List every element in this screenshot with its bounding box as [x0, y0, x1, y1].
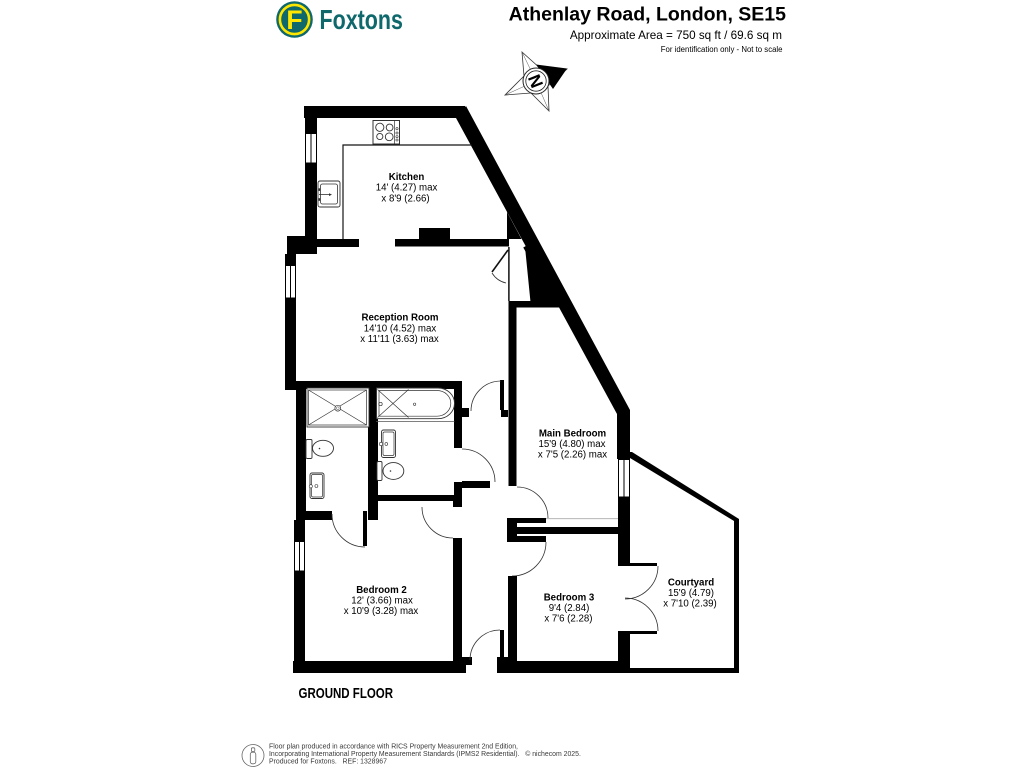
svg-text:12' (3.66) max: 12' (3.66) max [351, 596, 413, 607]
svg-text:Approximate Area = 750 sq ft /: Approximate Area = 750 sq ft / 69.6 sq m [570, 29, 782, 42]
svg-text:14'10 (4.52) max: 14'10 (4.52) max [364, 323, 437, 334]
svg-text:Foxtons: Foxtons [320, 6, 403, 36]
svg-text:Incorporating International Pr: Incorporating International Property Mea… [269, 750, 581, 758]
svg-text:Reception Room: Reception Room [362, 313, 439, 324]
svg-text:For identification only - Not: For identification only - Not to scale [661, 45, 783, 54]
svg-text:Courtyard: Courtyard [668, 577, 714, 588]
svg-text:Kitchen: Kitchen [389, 172, 425, 183]
svg-text:x 7'10 (2.39): x 7'10 (2.39) [663, 599, 717, 610]
svg-text:15'9 (4.80) max: 15'9 (4.80) max [538, 439, 605, 450]
svg-text:9'4 (2.84): 9'4 (2.84) [549, 603, 590, 614]
svg-text:F: F [286, 5, 302, 35]
svg-text:Bedroom 2: Bedroom 2 [356, 585, 407, 596]
svg-text:Main Bedroom: Main Bedroom [539, 429, 607, 440]
svg-text:Produced for Foxtons. REF: 1: Produced for Foxtons. REF: 1328967 [269, 759, 387, 766]
svg-text:x 7'6 (2.28): x 7'6 (2.28) [544, 614, 592, 625]
svg-text:14' (4.27) max: 14' (4.27) max [376, 183, 438, 194]
svg-text:x 10'9 (3.28) max: x 10'9 (3.28) max [344, 606, 419, 617]
svg-text:Bedroom 3: Bedroom 3 [544, 592, 595, 603]
svg-text:x 7'5 (2.26) max: x 7'5 (2.26) max [538, 450, 607, 461]
svg-text:15'9 (4.79): 15'9 (4.79) [668, 588, 714, 599]
svg-text:Athenlay Road, London, SE15: Athenlay Road, London, SE15 [509, 4, 787, 26]
svg-text:x 8'9 (2.66): x 8'9 (2.66) [381, 193, 429, 204]
svg-text:Floor plan produced in accorda: Floor plan produced in accordance with R… [269, 744, 518, 751]
svg-text:x 11'11 (3.63) max: x 11'11 (3.63) max [360, 334, 439, 345]
svg-text:GROUND FLOOR: GROUND FLOOR [299, 685, 394, 702]
